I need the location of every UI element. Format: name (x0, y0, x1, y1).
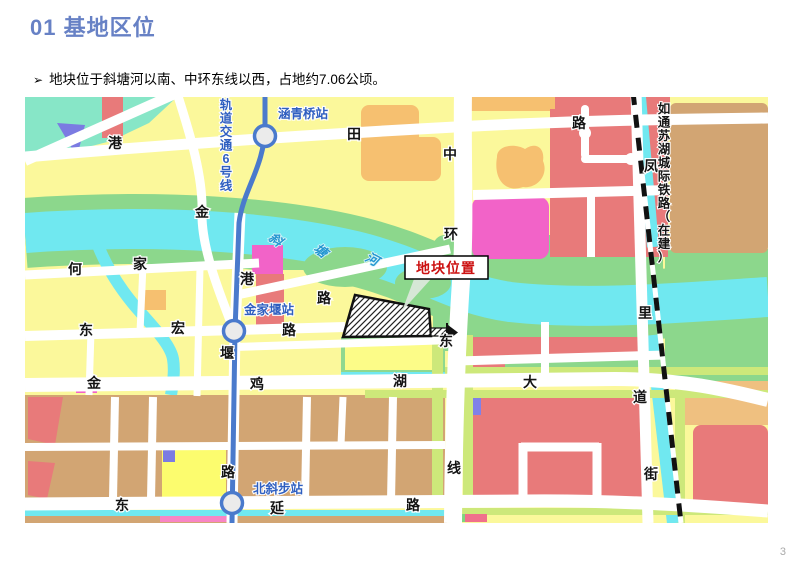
road-label: 金 (194, 204, 210, 220)
road-label: 何 (68, 261, 82, 277)
bullet-text: 地块位于斜塘河以南、中环东线以西，占地约7.06公顷。 (49, 72, 386, 87)
station-label: 金家堰站 (243, 302, 295, 317)
station-label: 涵青桥站 (278, 106, 329, 121)
road-label: 路 (406, 497, 421, 513)
road-label: 湖 (393, 373, 407, 389)
road-label: 港 (240, 271, 255, 287)
road-label: 环 (444, 226, 458, 242)
road-label: 延 (269, 500, 285, 516)
road-label: 路 (317, 290, 332, 306)
road-label: 路 (221, 464, 236, 480)
metro-label: 轨道交通6号线 (220, 97, 233, 193)
road-label: 宏 (171, 320, 185, 336)
callout-label: 地块位置 (416, 260, 476, 276)
road-label: 凤 (644, 158, 658, 174)
metro-station-marker-beixiebu (222, 493, 243, 514)
road-label: 金 (86, 375, 102, 391)
road-label: 鸡 (249, 376, 264, 392)
road-label: 路 (282, 322, 297, 338)
road-label: 港 (108, 135, 123, 151)
metro-station-marker-hanqingqiao (255, 126, 276, 147)
road-label: 街 (643, 466, 658, 482)
page-number: 3 (780, 546, 786, 558)
road-label: 田 (347, 126, 361, 142)
road-label: 东 (79, 322, 93, 338)
road-label: 道 (633, 389, 647, 405)
road-label: 路 (572, 115, 587, 131)
page-title: 01 基地区位 (30, 10, 156, 42)
road-label: 家 (133, 256, 148, 272)
road-label: 里 (638, 305, 652, 321)
road-label: 东 (439, 333, 453, 349)
road-label: 线 (447, 460, 461, 476)
slide: 01 基地区位 ➢地块位于斜塘河以南、中环东线以西，占地约7.06公顷。 (0, 0, 800, 566)
metro-station-marker-jinjiayan (224, 321, 245, 342)
bullet-arrow-icon: ➢ (33, 73, 43, 87)
road-label: 中 (443, 146, 457, 162)
station-label: 北斜步站 (253, 481, 304, 496)
rail-label: 如通苏湖城际铁路（在建） (658, 101, 671, 265)
road-label: 堰 (220, 345, 234, 361)
location-map: 港田路中环东线凤里街金港路何家东宏路堰金鸡湖大道路东延路涵青桥站金家堰站北斜步站… (25, 97, 768, 523)
map-canvas: 港田路中环东线凤里街金港路何家东宏路堰金鸡湖大道路东延路涵青桥站金家堰站北斜步站… (25, 97, 768, 523)
bullet-line: ➢地块位于斜塘河以南、中环东线以西，占地约7.06公顷。 (33, 68, 386, 88)
road-label: 大 (523, 374, 537, 390)
road-label: 东 (115, 497, 129, 513)
